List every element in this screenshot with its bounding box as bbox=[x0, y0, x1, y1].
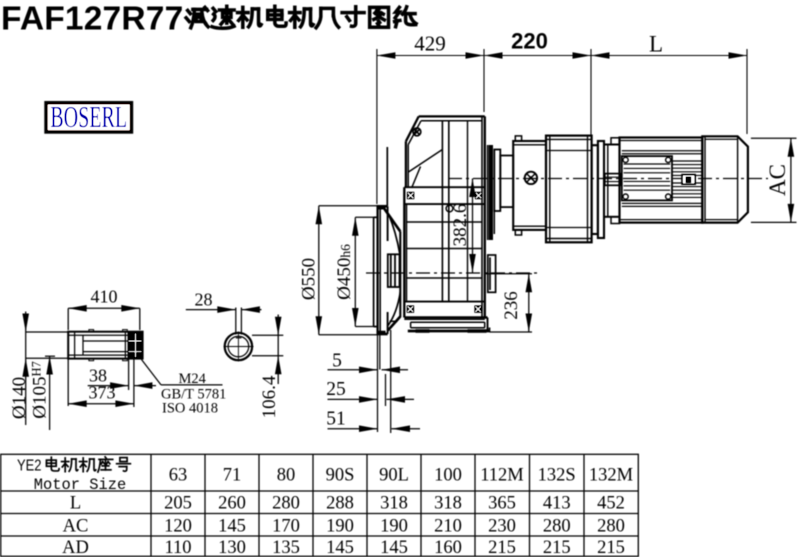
svg-text:Ø140: Ø140 bbox=[9, 377, 30, 419]
svg-text:100: 100 bbox=[434, 466, 462, 486]
svg-text:160: 160 bbox=[434, 538, 462, 557]
svg-text:BOSERL: BOSERL bbox=[50, 100, 127, 134]
svg-text:318: 318 bbox=[380, 494, 408, 514]
svg-text:413: 413 bbox=[543, 494, 571, 514]
svg-text:190: 190 bbox=[326, 516, 354, 536]
svg-text:M24: M24 bbox=[179, 371, 207, 387]
svg-text:130: 130 bbox=[218, 538, 246, 557]
svg-text:YE2: YE2 bbox=[17, 457, 42, 474]
svg-text:110: 110 bbox=[164, 538, 191, 557]
svg-text:220: 220 bbox=[511, 29, 548, 54]
svg-text:318: 318 bbox=[434, 494, 462, 514]
svg-text:120: 120 bbox=[164, 516, 192, 536]
svg-text:145: 145 bbox=[380, 538, 408, 557]
svg-text:236: 236 bbox=[501, 291, 522, 320]
svg-text:135: 135 bbox=[272, 538, 300, 557]
svg-text:90L: 90L bbox=[379, 466, 409, 486]
svg-text:260: 260 bbox=[218, 494, 246, 514]
svg-text:FAF127R77: FAF127R77 bbox=[1, 1, 183, 38]
svg-text:90S: 90S bbox=[326, 466, 355, 486]
svg-text:280: 280 bbox=[272, 494, 300, 514]
svg-text:63: 63 bbox=[169, 466, 188, 486]
svg-text:205: 205 bbox=[164, 494, 192, 514]
svg-text:25: 25 bbox=[326, 379, 346, 400]
svg-text:145: 145 bbox=[218, 516, 246, 536]
svg-text:AC: AC bbox=[765, 164, 790, 196]
svg-text:28: 28 bbox=[195, 290, 213, 310]
svg-text:106.4: 106.4 bbox=[259, 375, 280, 418]
svg-text:382.6: 382.6 bbox=[450, 204, 471, 247]
svg-text:288: 288 bbox=[326, 494, 354, 514]
svg-text:80: 80 bbox=[277, 466, 296, 486]
svg-text:5: 5 bbox=[332, 351, 342, 372]
svg-text:AC: AC bbox=[63, 516, 89, 536]
svg-text:L: L bbox=[649, 32, 663, 57]
svg-text:71: 71 bbox=[223, 466, 242, 486]
svg-text:ISO 4018: ISO 4018 bbox=[162, 401, 218, 417]
svg-text:410: 410 bbox=[91, 287, 118, 307]
svg-text:Motor Size: Motor Size bbox=[34, 476, 127, 494]
svg-text:Ø450h6: Ø450h6 bbox=[334, 244, 355, 300]
svg-text:280: 280 bbox=[597, 516, 625, 536]
svg-text:280: 280 bbox=[543, 516, 571, 536]
svg-text:L: L bbox=[70, 494, 81, 514]
svg-text:132S: 132S bbox=[538, 466, 576, 486]
svg-text:215: 215 bbox=[597, 538, 625, 557]
svg-text:365: 365 bbox=[488, 494, 516, 514]
svg-text:170: 170 bbox=[272, 516, 300, 536]
svg-text:429: 429 bbox=[414, 32, 446, 56]
svg-text:215: 215 bbox=[543, 538, 571, 557]
svg-text:373: 373 bbox=[89, 383, 116, 403]
svg-text:190: 190 bbox=[380, 516, 408, 536]
svg-text:215: 215 bbox=[488, 538, 516, 557]
svg-text:51: 51 bbox=[326, 408, 346, 429]
svg-text:132M: 132M bbox=[589, 466, 633, 486]
svg-text:210: 210 bbox=[434, 516, 462, 536]
svg-text:452: 452 bbox=[597, 494, 625, 514]
svg-text:145: 145 bbox=[326, 538, 354, 557]
svg-text:112M: 112M bbox=[480, 466, 524, 486]
svg-text:230: 230 bbox=[488, 516, 516, 536]
svg-text:AD: AD bbox=[62, 538, 89, 557]
svg-text:Ø550: Ø550 bbox=[299, 258, 320, 300]
